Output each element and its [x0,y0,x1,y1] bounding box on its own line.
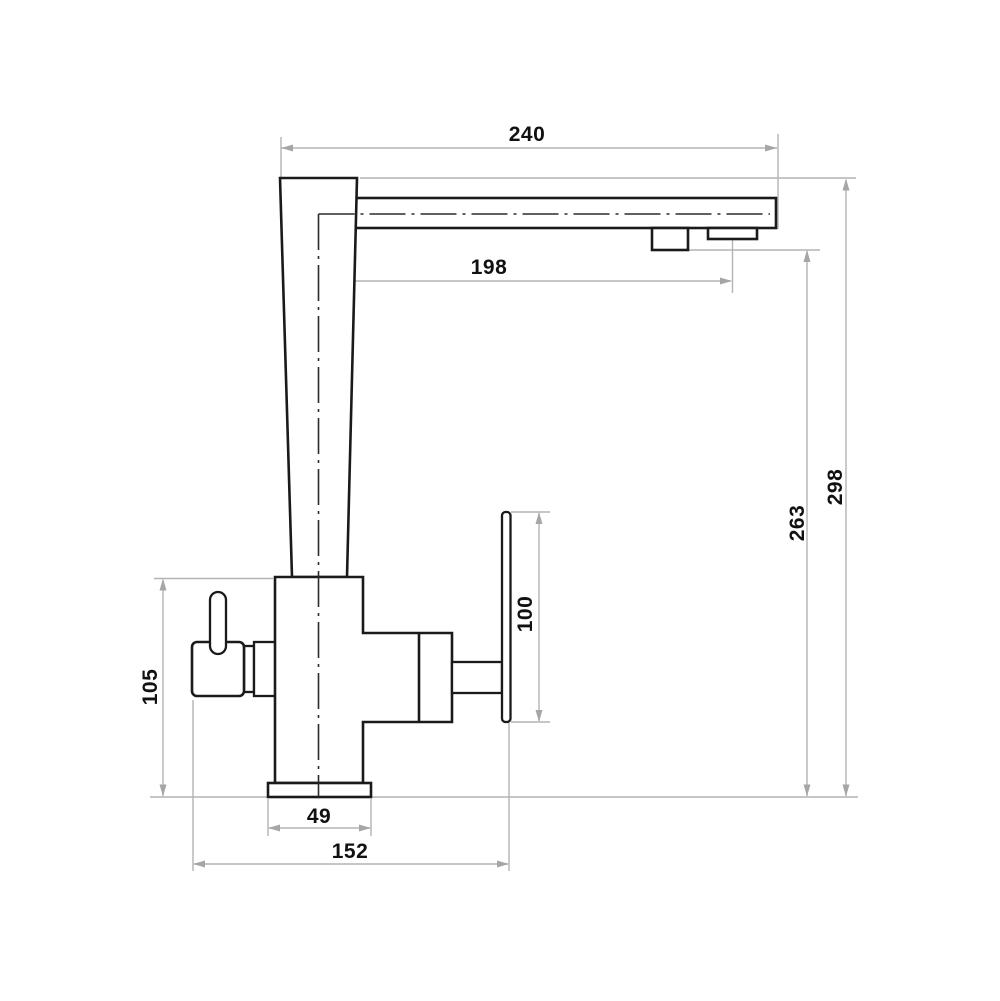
handle-lever-plate [502,512,511,722]
dim-label-152: 152 [332,840,369,863]
dimension-lines [150,134,858,871]
valve-connector [254,642,276,696]
handle-stem [452,662,502,693]
dim-label-240: 240 [509,123,546,146]
spout-underside-block [652,228,688,250]
valve-neck [244,646,254,692]
technical-drawing-page: 240 198 298 263 100 105 49 152 [0,0,1000,1001]
dim-label-198: 198 [471,256,508,279]
spout [355,198,776,228]
aerator [708,228,757,239]
dim-label-105: 105 [139,669,162,706]
base-plate [268,783,371,797]
technical-drawing-canvas: 240 198 298 263 100 105 49 152 [0,0,1000,1001]
dim-label-49: 49 [307,805,331,828]
side-valve-lever [210,592,226,654]
faucet-body [275,577,452,783]
dim-label-100: 100 [514,596,537,633]
dim-label-263: 263 [786,505,809,542]
dim-label-298: 298 [824,469,847,506]
